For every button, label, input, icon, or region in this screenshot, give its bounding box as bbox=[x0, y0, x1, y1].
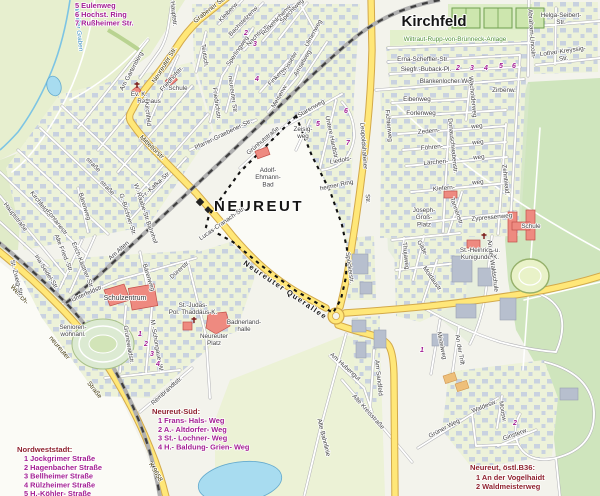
label-num-2-kirchfeld: 2 bbox=[455, 65, 460, 72]
label-num-4-kirchfeld: 4 bbox=[483, 65, 488, 72]
label-zirbenw: Zirbenw. bbox=[492, 87, 516, 94]
legend-neureut-oestl-b36-item-1: 1 An der Vogelhaidt bbox=[476, 473, 545, 482]
legend-neureut-sued-item-2: 2 A.- Altdorfer- Weg bbox=[158, 425, 227, 434]
label-seniorenwohnanl: Senioren-wohnanl. bbox=[59, 324, 86, 338]
label-num-3-sued: 3 bbox=[150, 351, 154, 358]
label-num-2-waldmeister: 2 bbox=[512, 420, 517, 427]
legend-top-left-item-3: 7 Rußheimer Str. bbox=[75, 19, 134, 28]
label-num-1-sued: 1 bbox=[138, 331, 142, 338]
legend-nordweststadt-item-2: 2 Hagenbacher Straße bbox=[24, 463, 102, 472]
label-num-1-vogelhaidt: 1 bbox=[420, 347, 424, 354]
legend-neureut-sued-header: Neureut-Süd: bbox=[152, 407, 200, 416]
legend-top-left-item-1: 5 Eulenweg bbox=[75, 1, 116, 10]
label-num-3-kirchfeld: 3 bbox=[470, 65, 474, 72]
label-foehren-weg: weg bbox=[471, 138, 485, 146]
stadium-east-icon bbox=[511, 259, 549, 293]
label-num-4-voegel: 4 bbox=[254, 76, 259, 83]
label-num-2-sued: 2 bbox=[143, 341, 148, 348]
label-num-4-sued: 4 bbox=[155, 361, 160, 368]
legend-nordweststadt-item-3: 3 Bellheimer Straße bbox=[24, 472, 93, 481]
label-wiltraut-rupp-anlage: Wiltraut-Rupp-von-Brünneck-Anlage bbox=[404, 36, 507, 43]
legend-neureut-sued-item-1: 1 Frans- Hals- Weg bbox=[158, 416, 225, 425]
legend-nordweststadt-item-1: 1 Jockgrimer Straße bbox=[24, 454, 95, 463]
legend-nordweststadt-header: Nordweststadt: bbox=[17, 445, 72, 454]
label-siegfr-buback-pl: Siegfr.-Buback-Pl. bbox=[401, 66, 452, 73]
label-erna-scheffler-str: Erna-Scheffler-Str. bbox=[397, 56, 449, 63]
legend-top-left-item-2: 6 Hochst. Ring bbox=[75, 10, 127, 19]
legend-nordweststadt-item-5: 5 H.-Köhler- Straße bbox=[24, 489, 91, 496]
label-kiefern-weg: weg bbox=[471, 178, 485, 186]
map-canvas[interactable]: NEUREUT Kirchfeld Neureuter Str.Mittelto… bbox=[0, 0, 600, 496]
legend-neureut-sued-item-3: 3 St.- Lochner- Weg bbox=[158, 434, 228, 443]
label-num-6-hardt: 6 bbox=[344, 108, 348, 115]
legend-neureut-sued-item-4: 4 H.- Baldung- Grien- Weg bbox=[158, 442, 250, 451]
legend-nordweststadt-item-4: 4 Rülzheimer Straße bbox=[24, 480, 95, 489]
label-num-6-kirchfeld: 6 bbox=[512, 63, 516, 70]
label-zedern-weg: weg bbox=[470, 122, 484, 130]
label-num-3-voegel: 3 bbox=[253, 41, 257, 48]
label-num-5-hardt: 5 bbox=[316, 121, 320, 128]
label-forlenweg: Forlenweg bbox=[406, 110, 436, 117]
quarter-label: Kirchfeld bbox=[401, 13, 466, 30]
label-num-5-kirchfeld: 5 bbox=[499, 63, 503, 70]
label-leopoldshafener-str: Str. bbox=[364, 194, 372, 204]
label-num-2-voegel: 2 bbox=[243, 30, 248, 37]
label-blankenlocher-weg: Blankenlocher Weg bbox=[420, 78, 475, 85]
label-eibenweg: Eibenweg bbox=[403, 96, 431, 103]
label-schule-dorf: Schule bbox=[168, 85, 188, 92]
district-label: NEUREUT bbox=[214, 198, 304, 215]
label-ev-k: Ev. K. bbox=[131, 91, 148, 98]
legend-neureut-oestl-b36-item-2: 2 Waldmeisterweg bbox=[476, 482, 541, 491]
st-judas-building bbox=[183, 322, 192, 330]
label-laerchen-weg: weg bbox=[472, 153, 486, 161]
label-schule-ost: Schule bbox=[521, 223, 541, 230]
legend-neureut-oestl-b36-header: Neureut, östl.B36: bbox=[470, 463, 535, 472]
label-schulzentrum: Schulzentrum bbox=[104, 295, 147, 302]
city-map: NEUREUT Kirchfeld Neureuter Str.Mittelto… bbox=[0, 0, 600, 496]
